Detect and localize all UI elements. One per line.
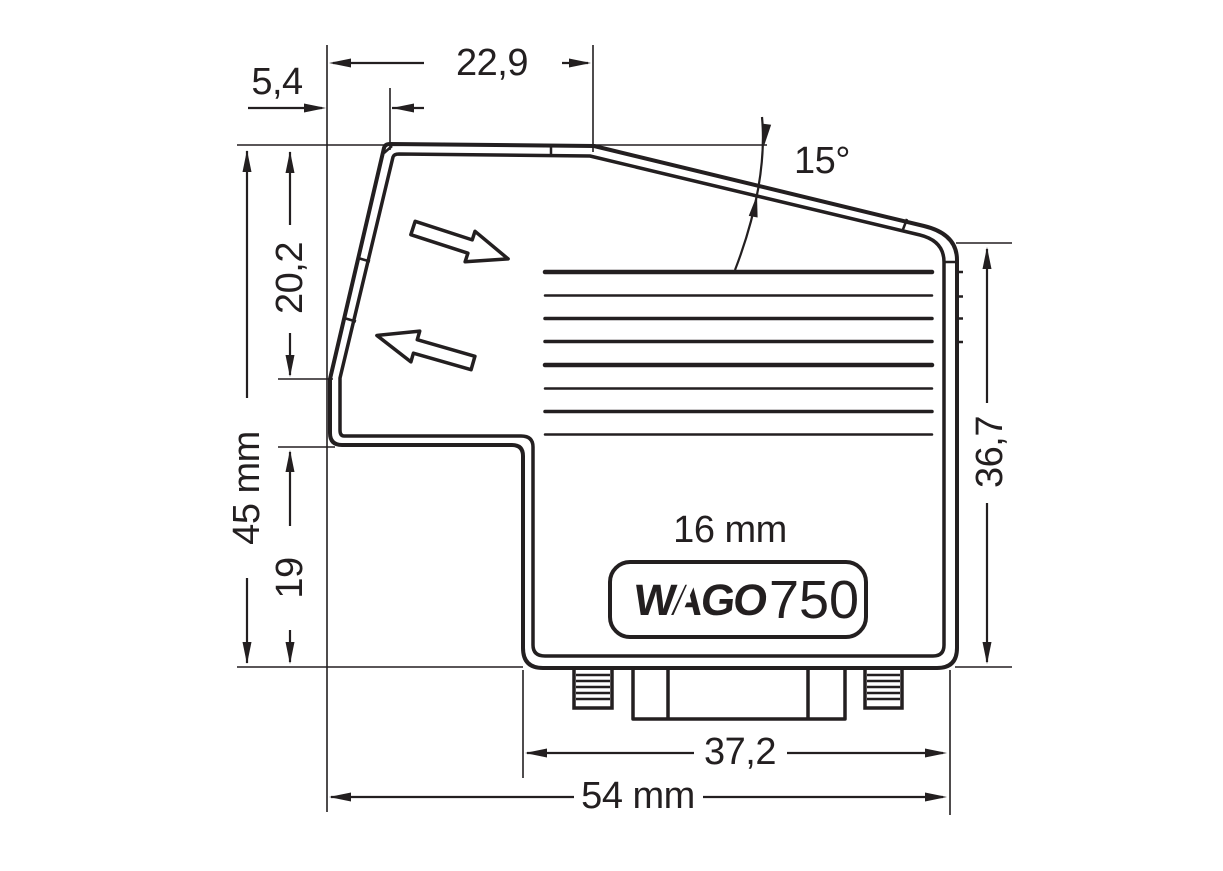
marking-width-label: 16 mm (673, 511, 787, 549)
dim-total-height-label: 45 mm (228, 431, 266, 545)
dim-lower-height-label: 19 (271, 557, 309, 598)
dim-total-width-label: 54 mm (581, 777, 695, 815)
logo-series-text: 750 (769, 573, 859, 627)
dim-right-height-label: 36,7 (971, 416, 1009, 488)
dimension-arrowheads (243, 59, 992, 802)
insertion-arrow-icon (408, 213, 513, 274)
thumbscrew-right (865, 668, 902, 708)
technical-drawing-canvas: 22,9 5,4 15° 20,2 45 mm 19 36,7 16 mm WA… (0, 0, 1223, 871)
wago-logo-text: WAGO (632, 579, 768, 623)
dim-connector-width-label: 37,2 (704, 733, 776, 771)
dim-upper-height-label: 20,2 (271, 242, 309, 314)
dim-top-offset-label: 5,4 (251, 63, 302, 101)
thumbscrew-left (574, 668, 612, 708)
drawing-linework (0, 0, 1223, 871)
angle-label: 15° (794, 142, 850, 180)
release-arrow-icon (372, 320, 477, 378)
vent-slot-lines (545, 272, 932, 435)
dim-top-width-label: 22,9 (456, 44, 528, 82)
dsub-connector (633, 668, 845, 719)
